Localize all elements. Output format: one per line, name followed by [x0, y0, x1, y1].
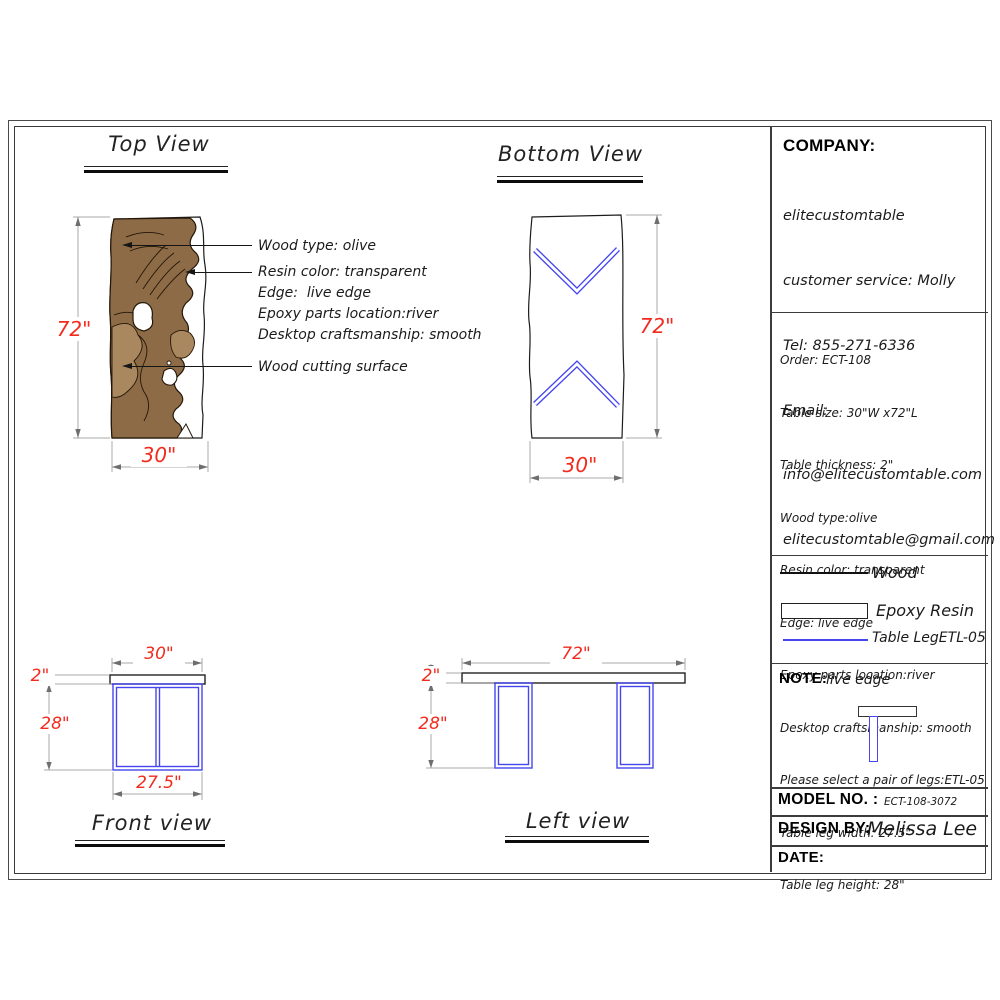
- left-length-dim-label: 72": [550, 644, 602, 664]
- top-view-title: Top View: [86, 132, 232, 156]
- note-text: live edge: [826, 672, 890, 688]
- legend-epoxy-label: Epoxy Resin: [876, 601, 974, 620]
- section-divider: [770, 787, 988, 789]
- leader-arrow-icon: [185, 269, 195, 275]
- legend-leg-label: Table LegETL-05: [872, 630, 986, 646]
- left-view-title: Left view: [513, 809, 643, 833]
- front-view-title-underline: [75, 840, 225, 847]
- wood-line-sample: [780, 572, 868, 574]
- epoxy-rect-sample: [781, 603, 868, 619]
- design-by-value: Melissa Lee: [867, 818, 977, 840]
- company-line: customer service: Molly: [783, 271, 995, 293]
- section-divider: [770, 815, 988, 817]
- company-label: COMPANY:: [783, 136, 875, 156]
- bottom-view-drawing: [470, 195, 710, 490]
- date-label: DATE:: [778, 849, 824, 866]
- icon-leg: [869, 716, 878, 762]
- annotation-cutting-surface: Wood cutting surface: [258, 359, 408, 375]
- section-divider: [770, 663, 988, 664]
- info-panel-divider: [770, 126, 772, 872]
- leg-line-sample: [783, 639, 868, 641]
- bottom-view-title: Bottom View: [498, 142, 642, 166]
- front-width-dim-label: 30": [133, 644, 185, 664]
- model-no-label: MODEL NO. :: [778, 791, 878, 809]
- bottom-height-dim-label: 72": [631, 314, 683, 338]
- front-thickness-dim-label: 2": [25, 666, 55, 686]
- annotation-wood-type: Wood type: olive: [258, 238, 376, 254]
- legend-wood-label: Wood: [872, 563, 918, 582]
- table-leg-frame: [617, 683, 653, 768]
- leader-line: [131, 366, 252, 367]
- bottom-view-title-underline: [497, 176, 643, 183]
- table-leg-frame: [113, 684, 202, 770]
- left-thickness-dim-label: 2": [416, 666, 446, 686]
- front-legheight-dim-label: 28": [34, 714, 76, 734]
- order-line: Desktop craftsmanship: smooth: [780, 720, 985, 738]
- front-view-title: Front view: [82, 811, 222, 835]
- leader-arrow-icon: [122, 363, 132, 369]
- order-line: Table thickness: 2": [780, 457, 985, 475]
- wood-hole: [162, 368, 177, 385]
- annotation-resin-color: Resin color: transparent: [258, 264, 427, 280]
- tabletop-profile: [110, 675, 205, 684]
- left-legheight-dim-label: 28": [412, 714, 454, 734]
- top-width-dim-label: 30": [131, 443, 187, 467]
- section-divider: [770, 555, 988, 556]
- drawing-sheet: Top View: [0, 0, 1000, 1000]
- annotation-epoxy-location: Epoxy parts location:river: [258, 306, 438, 322]
- section-divider: [770, 845, 988, 847]
- order-line: Table leg height: 28": [780, 877, 985, 895]
- front-legwidth-dim-label: 27.5": [128, 773, 190, 793]
- leader-arrow-icon: [122, 242, 132, 248]
- model-no-value: ECT-108-3072: [884, 796, 957, 808]
- slab-outline: [529, 215, 624, 438]
- order-line: Order: ECT-108: [780, 352, 985, 370]
- order-line: Wood type:olive: [780, 510, 985, 528]
- annotation-edge: Edge: live edge: [258, 285, 371, 301]
- design-by-label: DESIGN BY:: [778, 820, 870, 838]
- icon-tabletop: [858, 706, 917, 717]
- left-view-drawing: [410, 650, 710, 805]
- left-view-title-underline: [505, 836, 649, 843]
- bottom-width-dim-label: 30": [552, 453, 608, 477]
- note-label: NOTE:: [779, 670, 827, 687]
- top-height-dim-label: 72": [48, 317, 100, 341]
- top-view-title-underline: [84, 166, 228, 173]
- wood-hole: [133, 303, 153, 331]
- leader-line: [131, 245, 252, 246]
- table-leg-frame: [495, 683, 532, 768]
- wood-hole: [167, 361, 171, 365]
- company-line: elitecustomtable: [783, 206, 995, 228]
- leader-line: [194, 272, 252, 273]
- annotation-craftsmanship: Desktop craftsmanship: smooth: [258, 327, 482, 343]
- order-line: Table size: 30"W x72"L: [780, 405, 985, 423]
- tabletop-profile: [462, 673, 685, 683]
- section-divider: [770, 312, 988, 313]
